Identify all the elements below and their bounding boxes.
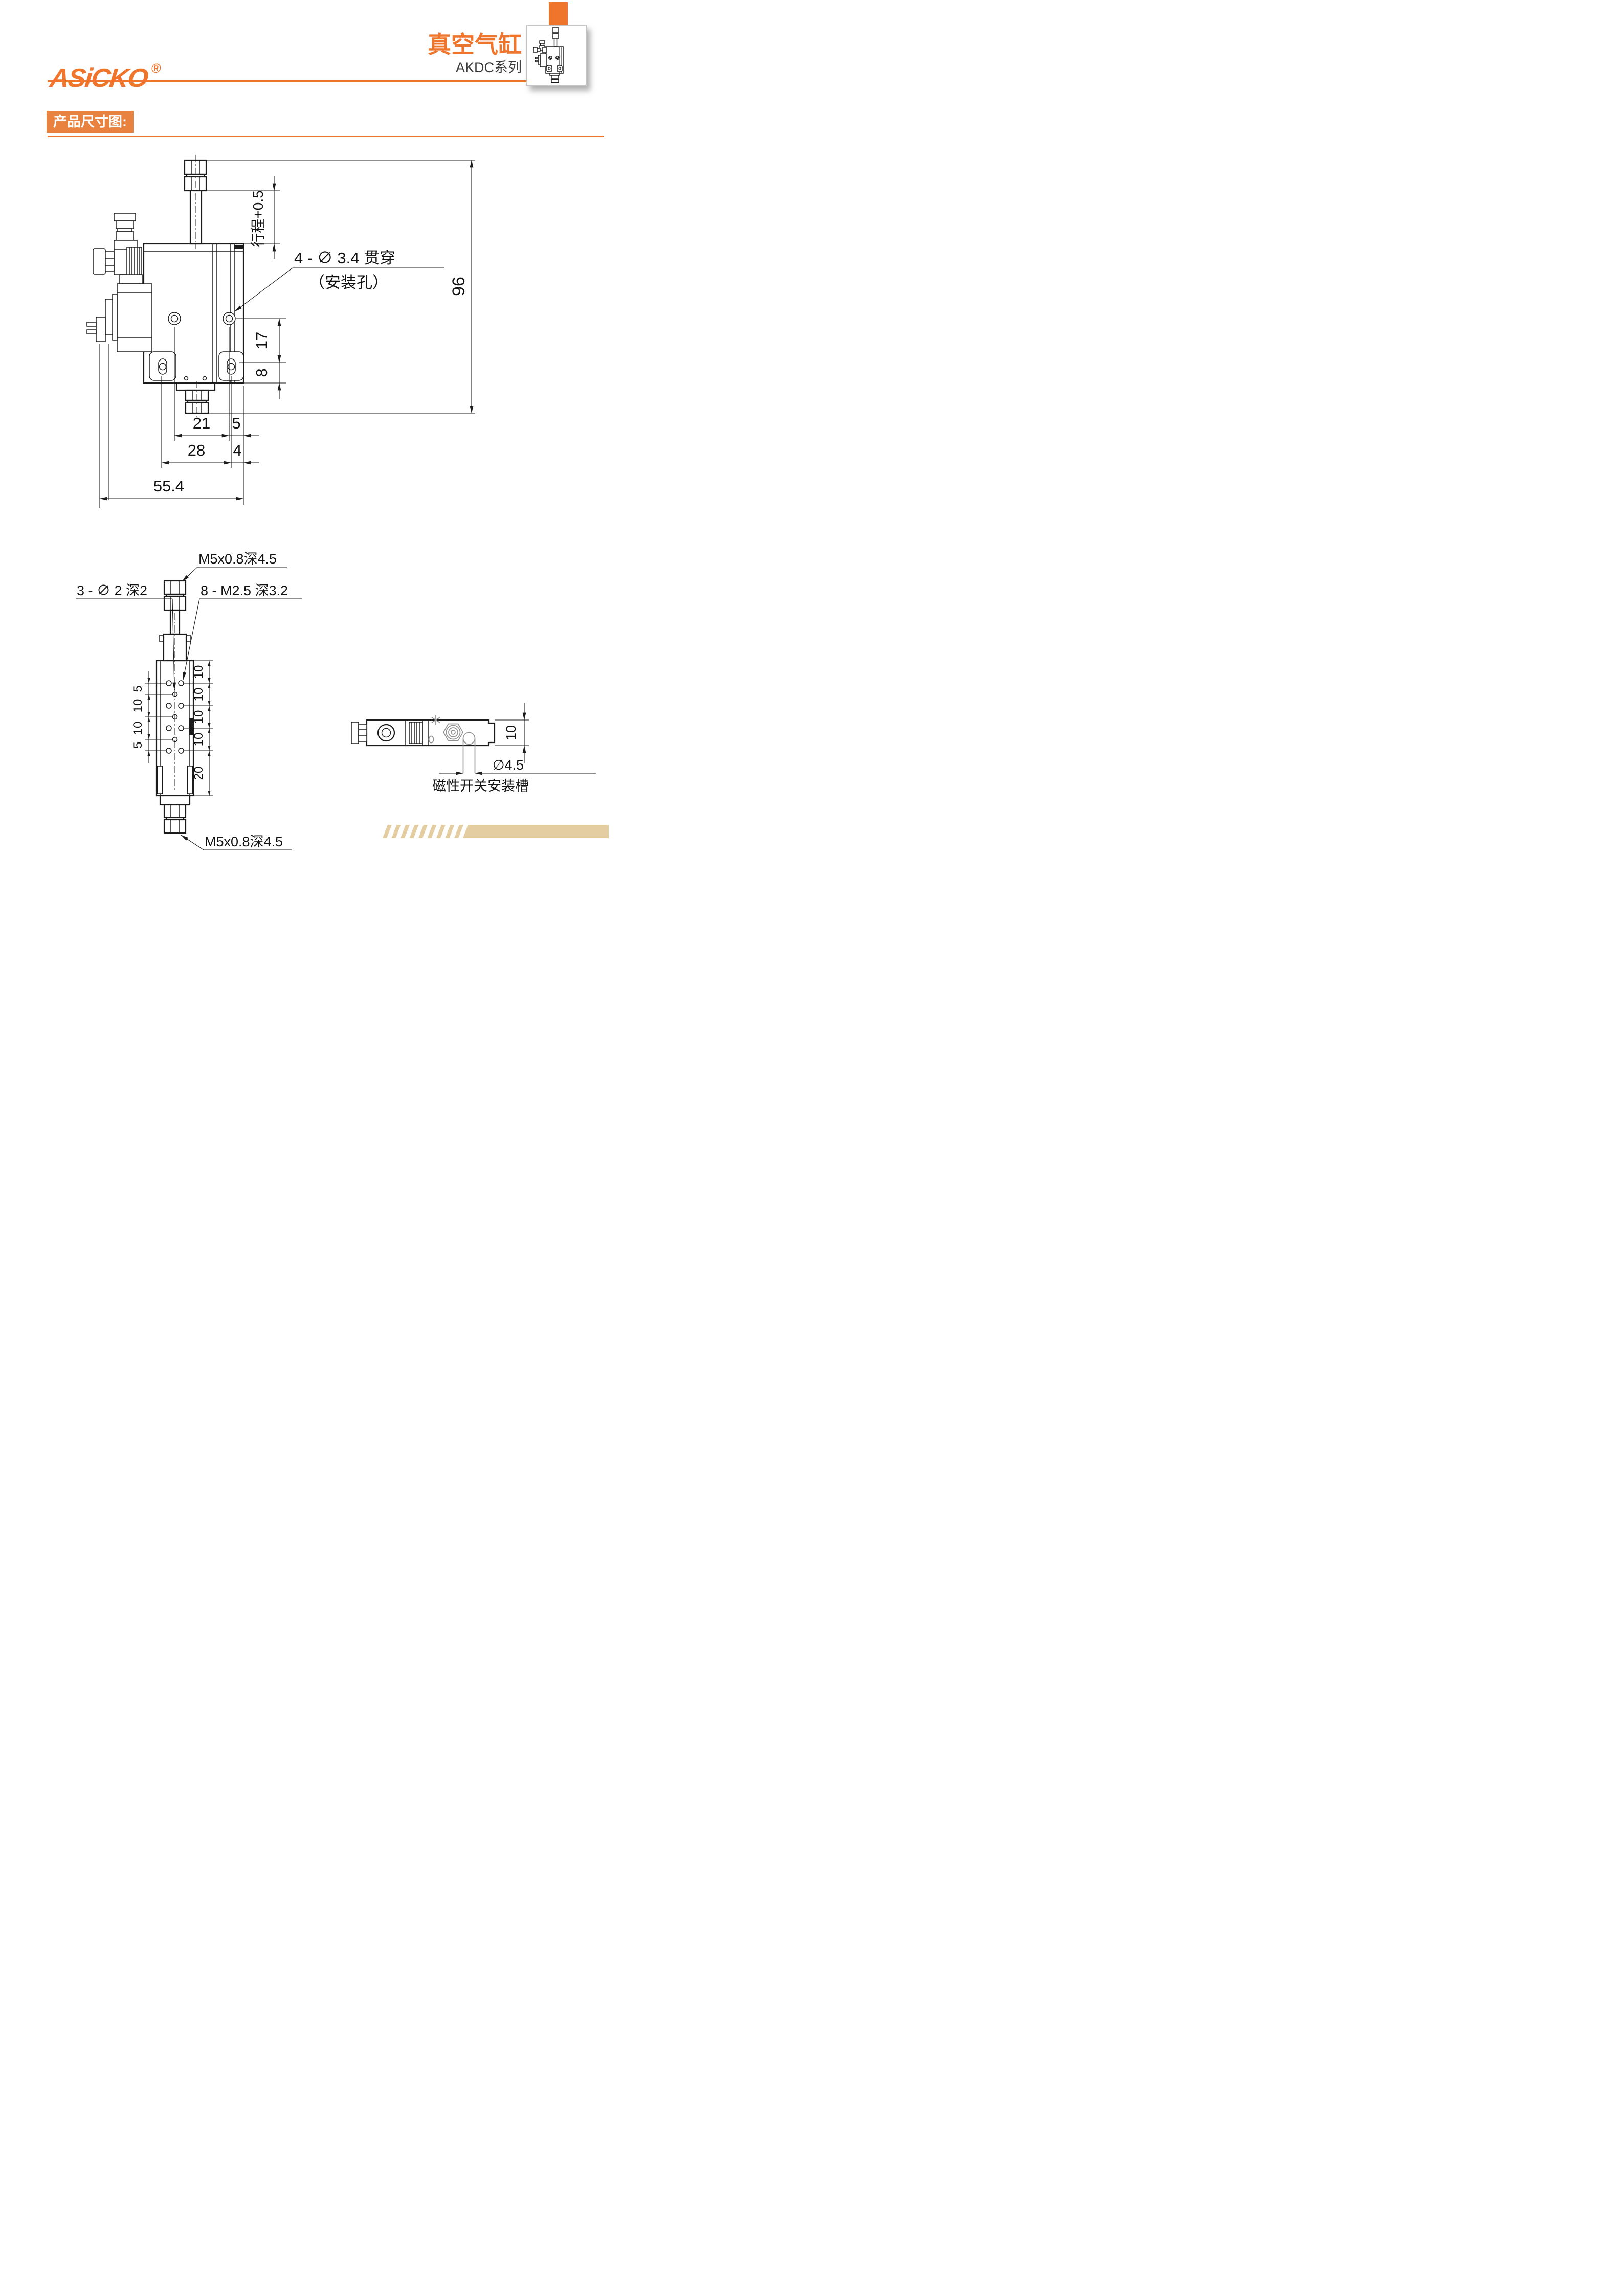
front-left-dim-4: 5 xyxy=(131,741,145,748)
dim-17: 17 xyxy=(253,332,271,349)
hole-note-sub: （安装孔） xyxy=(309,274,388,291)
dim-55-4: 55.4 xyxy=(153,477,184,495)
front-view-drawing: M5x0.8深4.5 xyxy=(76,551,302,850)
thread-holes-note: 8 - M2.5 深3.2 xyxy=(201,583,288,598)
dim-stroke-label: 行程+0.5 xyxy=(250,190,266,247)
side-view-drawing: 96 行程+0.5 4 - ∅ 3.4 贯穿 （安装孔） 17 8 xyxy=(87,155,475,508)
top-thread-note: M5x0.8深4.5 xyxy=(198,551,277,567)
section-label-text: 产品尺寸图: xyxy=(47,111,134,133)
footer-stripe-bar xyxy=(383,825,609,838)
front-right-dim-3: 10 xyxy=(192,710,206,724)
top-view-drawing: 10 ∅4.5 磁性开关安装槽 xyxy=(351,703,596,794)
product-thumbnail-drawing xyxy=(527,26,584,83)
front-right-dim-5: 20 xyxy=(192,767,206,780)
hole-note: 4 - ∅ 3.4 贯穿 xyxy=(294,249,395,267)
slot-label: 磁性开关安装槽 xyxy=(432,778,529,794)
front-right-dim-4: 10 xyxy=(192,733,206,747)
pin-holes-note: 3 - ∅ 2 深2 xyxy=(77,583,147,598)
front-right-dim-2: 10 xyxy=(192,688,206,702)
front-right-dim-1: 10 xyxy=(192,665,206,679)
dim-21: 21 xyxy=(193,414,210,432)
front-left-dim-2: 10 xyxy=(131,699,145,713)
dim-8: 8 xyxy=(253,368,271,377)
dim-5: 5 xyxy=(232,414,240,432)
dim-28: 28 xyxy=(188,441,205,459)
front-left-dim-1: 5 xyxy=(131,685,145,692)
top-view-height-dim: 10 xyxy=(503,725,519,740)
dim-4: 4 xyxy=(233,441,241,459)
slot-diameter: ∅4.5 xyxy=(493,757,524,773)
section-label: 产品尺寸图: xyxy=(47,111,134,133)
bottom-thread-note: M5x0.8深4.5 xyxy=(205,834,283,849)
product-thumbnail-box xyxy=(526,25,587,86)
catalog-page: ASiCKO® 真空气缸 AKDC系列 xyxy=(0,0,609,861)
front-left-dim-3: 10 xyxy=(131,722,145,735)
dim-overall-height: 96 xyxy=(449,277,469,296)
